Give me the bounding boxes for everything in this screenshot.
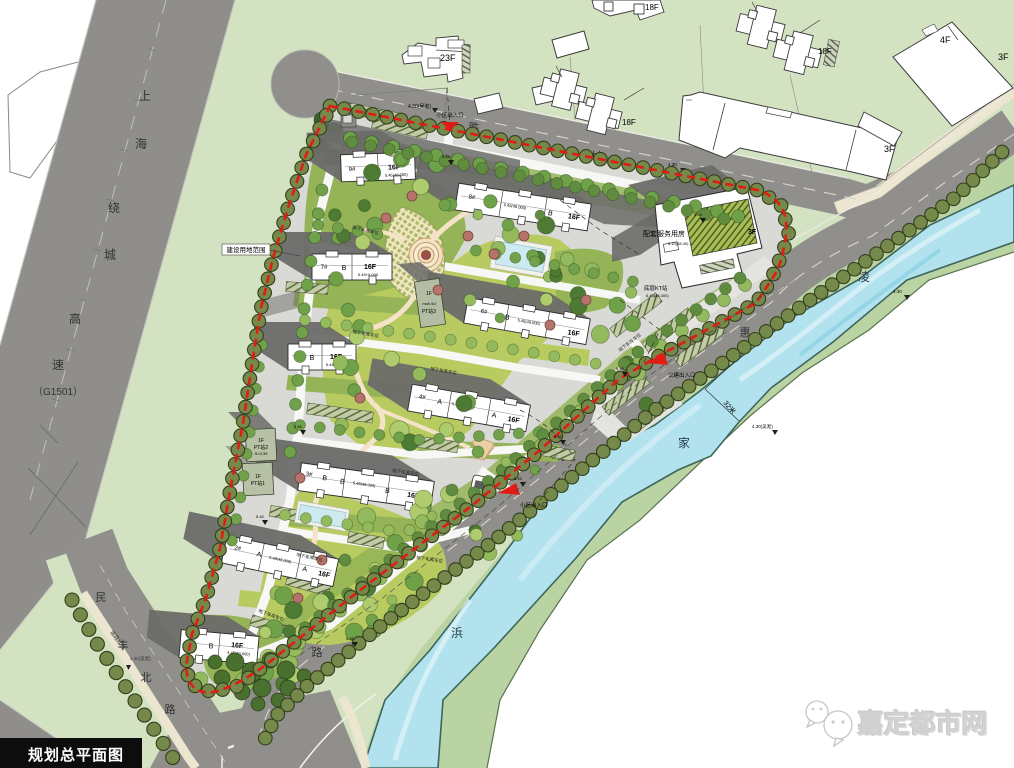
svg-text:小区出入口: 小区出入口 (436, 111, 464, 119)
svg-text:4.30(吴淞): 4.30(吴淞) (408, 103, 431, 110)
svg-text:规划总平面图: 规划总平面图 (28, 746, 124, 764)
svg-text:海: 海 (135, 136, 147, 151)
svg-text:高: 高 (69, 311, 81, 326)
svg-text:B: B (342, 265, 347, 272)
svg-text:4.30(吴淞): 4.30(吴淞) (752, 423, 773, 430)
svg-text:1F: 1F (258, 438, 264, 444)
svg-text:（G1501）: （G1501） (33, 386, 83, 398)
svg-text:S=0.39: S=0.39 (255, 451, 269, 456)
svg-text:绕: 绕 (108, 201, 120, 215)
svg-text:muh.5d: muh.5d (422, 301, 435, 306)
svg-text:9#: 9# (349, 167, 357, 173)
svg-text:配套服务用房: 配套服务用房 (643, 229, 685, 238)
svg-text:5.45: 5.45 (256, 514, 265, 519)
svg-text:3F: 3F (998, 52, 1009, 62)
svg-text:5.45: 5.45 (346, 636, 355, 641)
svg-text:B: B (208, 643, 214, 650)
svg-text:5.10(48.40): 5.10(48.40) (668, 241, 689, 246)
svg-text:B: B (310, 355, 315, 362)
svg-text:5.45: 5.45 (294, 424, 303, 429)
svg-text:路: 路 (312, 646, 323, 659)
svg-text:上: 上 (139, 89, 151, 103)
svg-text:公建出入口: 公建出入口 (668, 371, 696, 379)
svg-text:小区出入口: 小区出入口 (520, 501, 548, 509)
svg-text:速: 速 (52, 358, 64, 372)
svg-text:3F: 3F (748, 229, 757, 236)
svg-text:浜: 浜 (451, 626, 463, 640)
svg-text:家: 家 (678, 435, 690, 450)
svg-text:PT站3: PT站3 (422, 308, 436, 315)
svg-text:4F: 4F (940, 35, 951, 45)
svg-text:PT站2: PT站2 (254, 444, 268, 451)
svg-text:23F: 23F (440, 53, 456, 63)
svg-text:1F: 1F (255, 474, 261, 480)
svg-text:5.45: 5.45 (694, 212, 703, 217)
svg-text:5.48+0.000: 5.48+0.000 (358, 272, 379, 277)
svg-text:5.45: 5.45 (514, 476, 523, 481)
svg-text:5.45(48.300): 5.45(48.300) (646, 293, 669, 298)
svg-text:民: 民 (96, 592, 107, 604)
svg-text:5.45(48.000): 5.45(48.000) (385, 172, 409, 178)
svg-text:5.45: 5.45 (442, 154, 451, 159)
svg-text:嘉定都市网: 嘉定都市网 (858, 709, 988, 739)
svg-text:18F: 18F (645, 3, 659, 12)
svg-text:底层KT站: 底层KT站 (644, 284, 668, 292)
svg-text:18F: 18F (818, 47, 832, 56)
svg-text:4.30: 4.30 (893, 289, 902, 294)
svg-text:16F: 16F (364, 264, 377, 271)
svg-text:5.45: 5.45 (616, 366, 625, 371)
svg-text:路: 路 (165, 703, 176, 716)
svg-text:16F: 16F (231, 642, 244, 650)
svg-text:PT站1: PT站1 (251, 480, 265, 487)
svg-text:城: 城 (104, 248, 116, 262)
svg-text:18F: 18F (622, 118, 636, 127)
svg-text:4.30(吴淞): 4.30(吴淞) (130, 655, 151, 662)
svg-text:北: 北 (141, 671, 152, 684)
svg-text:建设用地范围: 建设用地范围 (227, 245, 266, 254)
svg-text:1F: 1F (426, 291, 432, 297)
svg-text:7#: 7# (321, 265, 328, 271)
